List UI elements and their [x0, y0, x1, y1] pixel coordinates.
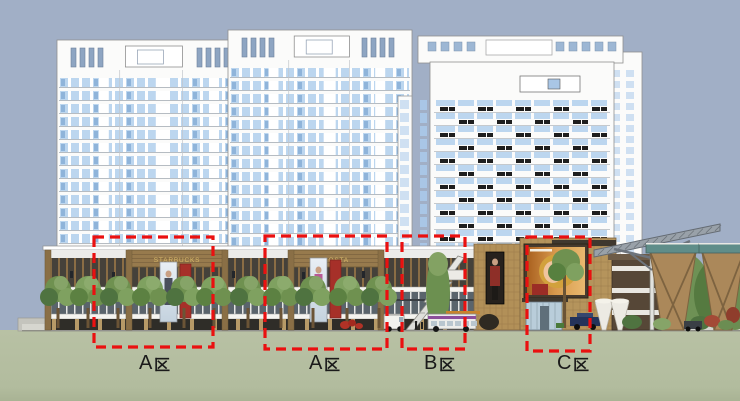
building-elevation-scene: STARBUCKS COSTA — [0, 0, 740, 401]
qu-character-glyph — [323, 355, 341, 374]
zone-letter: A — [139, 352, 152, 375]
qu-character-glyph — [572, 355, 590, 374]
zone-letter: B — [424, 352, 437, 375]
elevation-rendering: STARBUCKS COSTA A A — [0, 0, 740, 401]
qu-character-glyph — [438, 355, 456, 374]
zone-label-a2: A — [309, 352, 341, 375]
ground-plane — [0, 330, 740, 401]
feature-wall-banner — [474, 244, 522, 330]
zone-letter: A — [309, 352, 322, 375]
zone-label-a1: A — [139, 352, 171, 375]
residential-towers — [57, 30, 412, 257]
hotel-tower — [418, 36, 642, 256]
qu-character-glyph — [153, 355, 171, 374]
zone-letter: C — [557, 352, 571, 375]
zone-label-b: B — [424, 352, 456, 375]
zone-label-c: C — [557, 352, 590, 375]
